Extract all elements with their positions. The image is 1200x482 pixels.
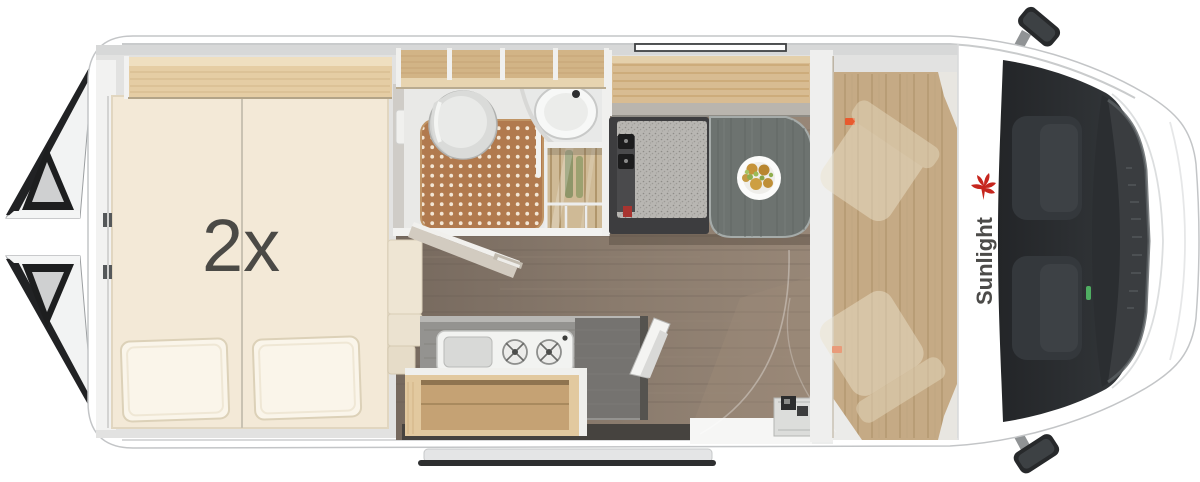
svg-text:2x: 2x bbox=[202, 204, 280, 287]
svg-text:Sunlight: Sunlight bbox=[972, 216, 997, 305]
